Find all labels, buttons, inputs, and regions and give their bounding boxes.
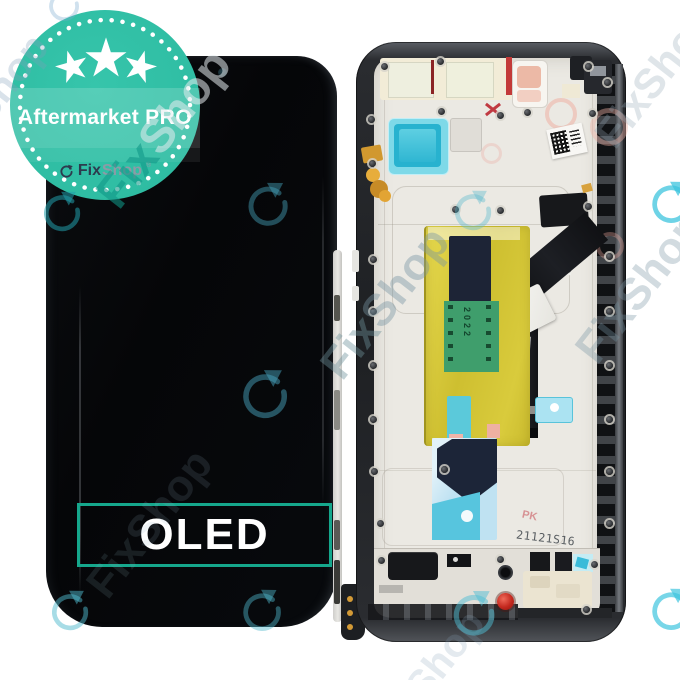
screw <box>591 561 598 568</box>
green-strip-dots <box>448 305 453 367</box>
screw <box>497 556 504 563</box>
screw <box>585 203 592 210</box>
screw <box>370 256 377 263</box>
seam-line <box>592 62 593 614</box>
screw <box>497 112 504 119</box>
green-flex-strip: 2022 <box>444 301 499 372</box>
refresh-arrow-watermark-icon <box>641 581 680 640</box>
screw <box>441 466 448 473</box>
screw <box>585 63 592 70</box>
small-black-component <box>447 554 471 567</box>
sticker-texture <box>556 584 580 598</box>
badge-brand-logo: FixShop ® <box>10 160 200 182</box>
frame-right-lip <box>615 64 623 612</box>
screw <box>606 468 613 475</box>
seam-line <box>384 62 385 614</box>
pink-residue-ring <box>481 143 502 164</box>
red-screw <box>497 593 514 610</box>
gold-contact <box>347 596 353 602</box>
barcode-lines <box>569 129 582 147</box>
gray-shield-plate <box>450 118 482 152</box>
edge-mark <box>334 390 340 430</box>
grille-block <box>530 552 550 572</box>
screw <box>369 160 376 167</box>
screw <box>606 253 613 260</box>
teal-flex-core <box>575 557 589 570</box>
tab-hole <box>461 510 473 522</box>
gold-contact <box>347 610 353 616</box>
component-hole <box>453 557 458 562</box>
earpiece-foam <box>517 66 541 88</box>
gold-contact <box>347 624 353 630</box>
teal-flex-bit <box>573 554 593 572</box>
tab-hole <box>550 403 559 412</box>
sticker-texture <box>530 576 550 588</box>
small-cream-pad <box>562 84 580 98</box>
edge-mark <box>334 560 340 604</box>
screw <box>368 116 375 123</box>
screw <box>437 58 444 65</box>
screw <box>524 109 531 116</box>
blue-pull-sticker <box>432 438 497 540</box>
screw <box>370 416 377 423</box>
screw <box>606 308 613 315</box>
product-photo: OLED <box>0 0 680 680</box>
cream-sticker-cell <box>388 62 434 98</box>
navy-component <box>449 236 491 302</box>
screw <box>452 206 459 213</box>
gray-bracket-bar <box>379 585 403 593</box>
oled-label-box: OLED <box>77 503 332 567</box>
red-tape-line <box>431 60 434 94</box>
star-icon <box>121 46 161 84</box>
gold-flex-dot <box>379 190 391 202</box>
brand-registered-mark: ® <box>146 162 151 169</box>
refresh-arrow-watermark-icon <box>641 174 680 233</box>
screw <box>606 520 613 527</box>
edge-mark <box>334 520 340 550</box>
frame-side-tab <box>352 250 359 272</box>
screw <box>371 468 378 475</box>
battery-code: 2022 <box>462 307 471 367</box>
pink-pad <box>487 424 500 438</box>
badge-label-bold: PRO <box>145 106 192 130</box>
bottom-dark-bar <box>518 608 612 618</box>
screw <box>606 416 613 423</box>
frame-side-tab <box>352 286 359 301</box>
bottom-cream-sticker <box>523 571 592 608</box>
screw <box>370 308 377 315</box>
screw <box>497 207 504 214</box>
cyan-pull-tab <box>535 397 573 423</box>
screw <box>378 557 385 564</box>
brand-fix: Fix <box>78 162 101 180</box>
grille-block <box>555 552 572 572</box>
screw <box>370 362 377 369</box>
screen-edge-reflection <box>322 176 324 506</box>
frame-antenna-strip <box>597 64 615 612</box>
screw <box>604 79 611 86</box>
camera-punch-hole-icon <box>218 68 227 77</box>
earpiece-foam-lower <box>517 90 541 102</box>
refresh-arrow-icon <box>59 164 74 179</box>
screw <box>438 108 445 115</box>
speaker-module <box>388 552 438 580</box>
barcode-pattern <box>550 130 570 155</box>
screw <box>381 63 388 70</box>
screw <box>606 362 613 369</box>
star-icon <box>52 46 92 84</box>
cream-sticker-cell <box>446 62 494 98</box>
badge-band: Aftermarket PRO <box>10 88 200 148</box>
green-strip-dots <box>486 305 491 367</box>
brand-shop: Shop <box>102 162 142 180</box>
microphone-port <box>498 565 513 580</box>
screw <box>583 606 590 613</box>
display-side-edge <box>333 250 342 622</box>
bottom-antenna-teeth <box>368 604 518 620</box>
edge-mark <box>334 295 340 321</box>
cyan-adhesive-core <box>399 129 436 162</box>
aftermarket-pro-badge: Aftermarket PRO FixShop ® <box>10 10 200 200</box>
screw <box>589 110 596 117</box>
module-metal-bit <box>590 66 606 76</box>
badge-label-regular: Aftermarket <box>18 106 139 130</box>
oled-label: OLED <box>139 510 269 560</box>
star-icon <box>85 37 126 76</box>
screw <box>377 520 384 527</box>
